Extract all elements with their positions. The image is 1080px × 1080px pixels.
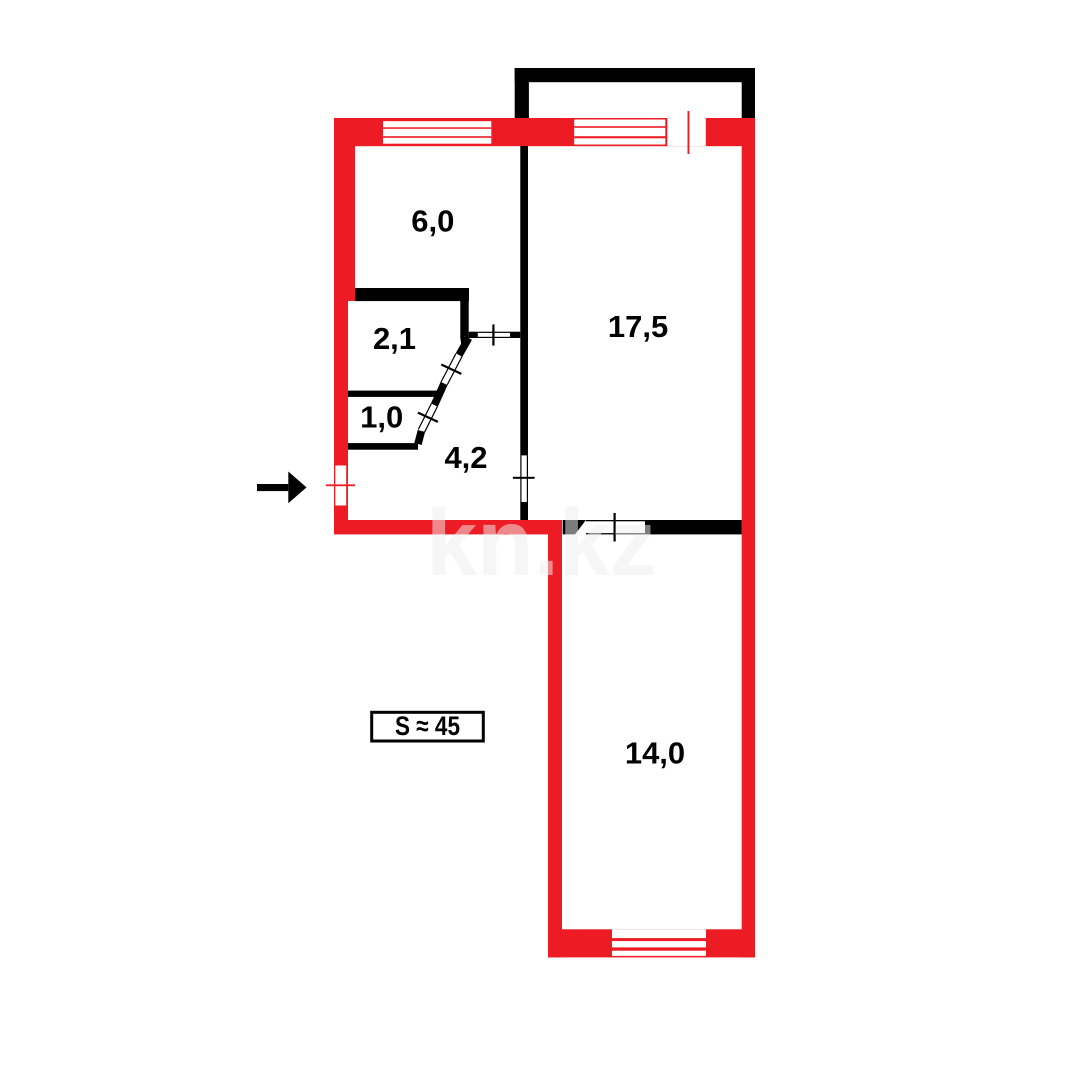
svg-text:S ≈ 45: S ≈ 45 <box>395 711 460 741</box>
svg-text:14,0: 14,0 <box>625 736 685 771</box>
svg-text:kn.kz: kn.kz <box>426 490 656 596</box>
svg-text:6,0: 6,0 <box>411 203 454 238</box>
svg-text:4,2: 4,2 <box>444 440 487 475</box>
svg-text:2,1: 2,1 <box>373 321 416 356</box>
svg-text:17,5: 17,5 <box>608 309 668 344</box>
svg-text:1,0: 1,0 <box>360 399 403 434</box>
